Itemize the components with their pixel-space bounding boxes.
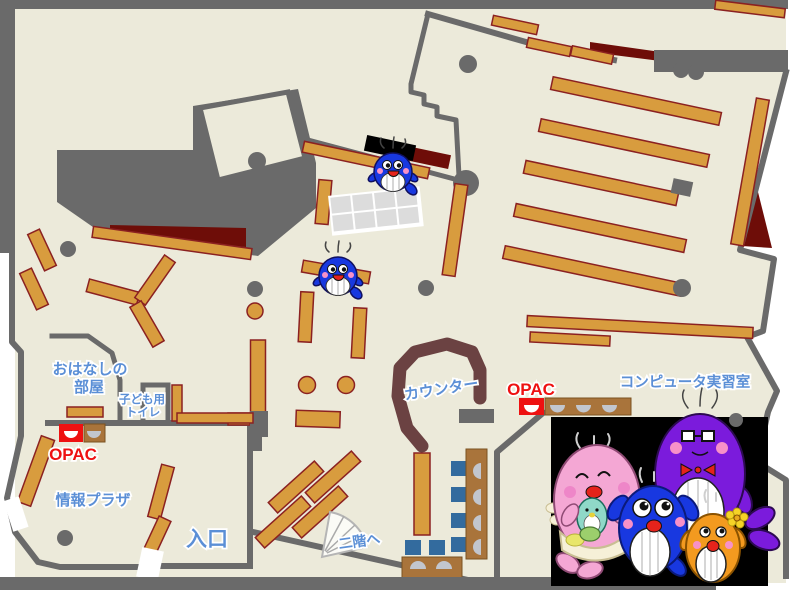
pillar <box>60 241 76 257</box>
round-table <box>247 303 263 319</box>
whale-family-panel <box>546 388 782 586</box>
round-table <box>338 377 355 394</box>
pillar <box>459 55 477 73</box>
pillar <box>57 530 73 546</box>
library-floor-map: おはなしの 部屋 子ども用 トイレ OPAC 情報プラザ 入口 二階へ カウンタ… <box>0 0 800 590</box>
wall-stub <box>252 437 262 451</box>
chair <box>405 540 421 555</box>
bookshelf <box>177 413 253 423</box>
label-kids-toilet-line2: トイレ <box>126 406 161 419</box>
bookshelf <box>251 340 266 412</box>
label-computer-room: コンピュータ実習室 <box>620 373 751 391</box>
chair <box>451 487 467 502</box>
label-entrance: 入口 <box>186 528 228 551</box>
pillar <box>673 279 691 297</box>
label-storytelling-room-line2: 部屋 <box>74 378 104 396</box>
bookshelf <box>296 410 341 428</box>
label-opac-counter: OPAC <box>507 380 555 399</box>
label-info-plaza: 情報プラザ <box>55 491 130 509</box>
pillar <box>673 62 689 78</box>
label-storytelling-room-line1: おはなしの <box>52 361 127 378</box>
bookshelf <box>351 308 367 359</box>
pillar <box>688 64 704 80</box>
pillar <box>729 413 743 427</box>
label-opac-plaza: OPAC <box>49 445 97 464</box>
round-table <box>299 377 316 394</box>
bookshelf <box>298 292 314 343</box>
pillar <box>248 152 266 170</box>
bookshelf <box>414 453 430 535</box>
outer-wall-left <box>0 0 15 253</box>
chair <box>451 513 467 528</box>
counter-side-desk <box>459 409 494 423</box>
bookshelf <box>67 407 103 417</box>
pillar <box>247 281 263 297</box>
outer-wall-top <box>0 0 788 9</box>
chair <box>429 540 445 555</box>
label-kids-toilet-line1: 子ども用 <box>119 393 165 406</box>
pillar <box>418 280 434 296</box>
chair <box>451 461 467 476</box>
chair <box>451 537 467 552</box>
